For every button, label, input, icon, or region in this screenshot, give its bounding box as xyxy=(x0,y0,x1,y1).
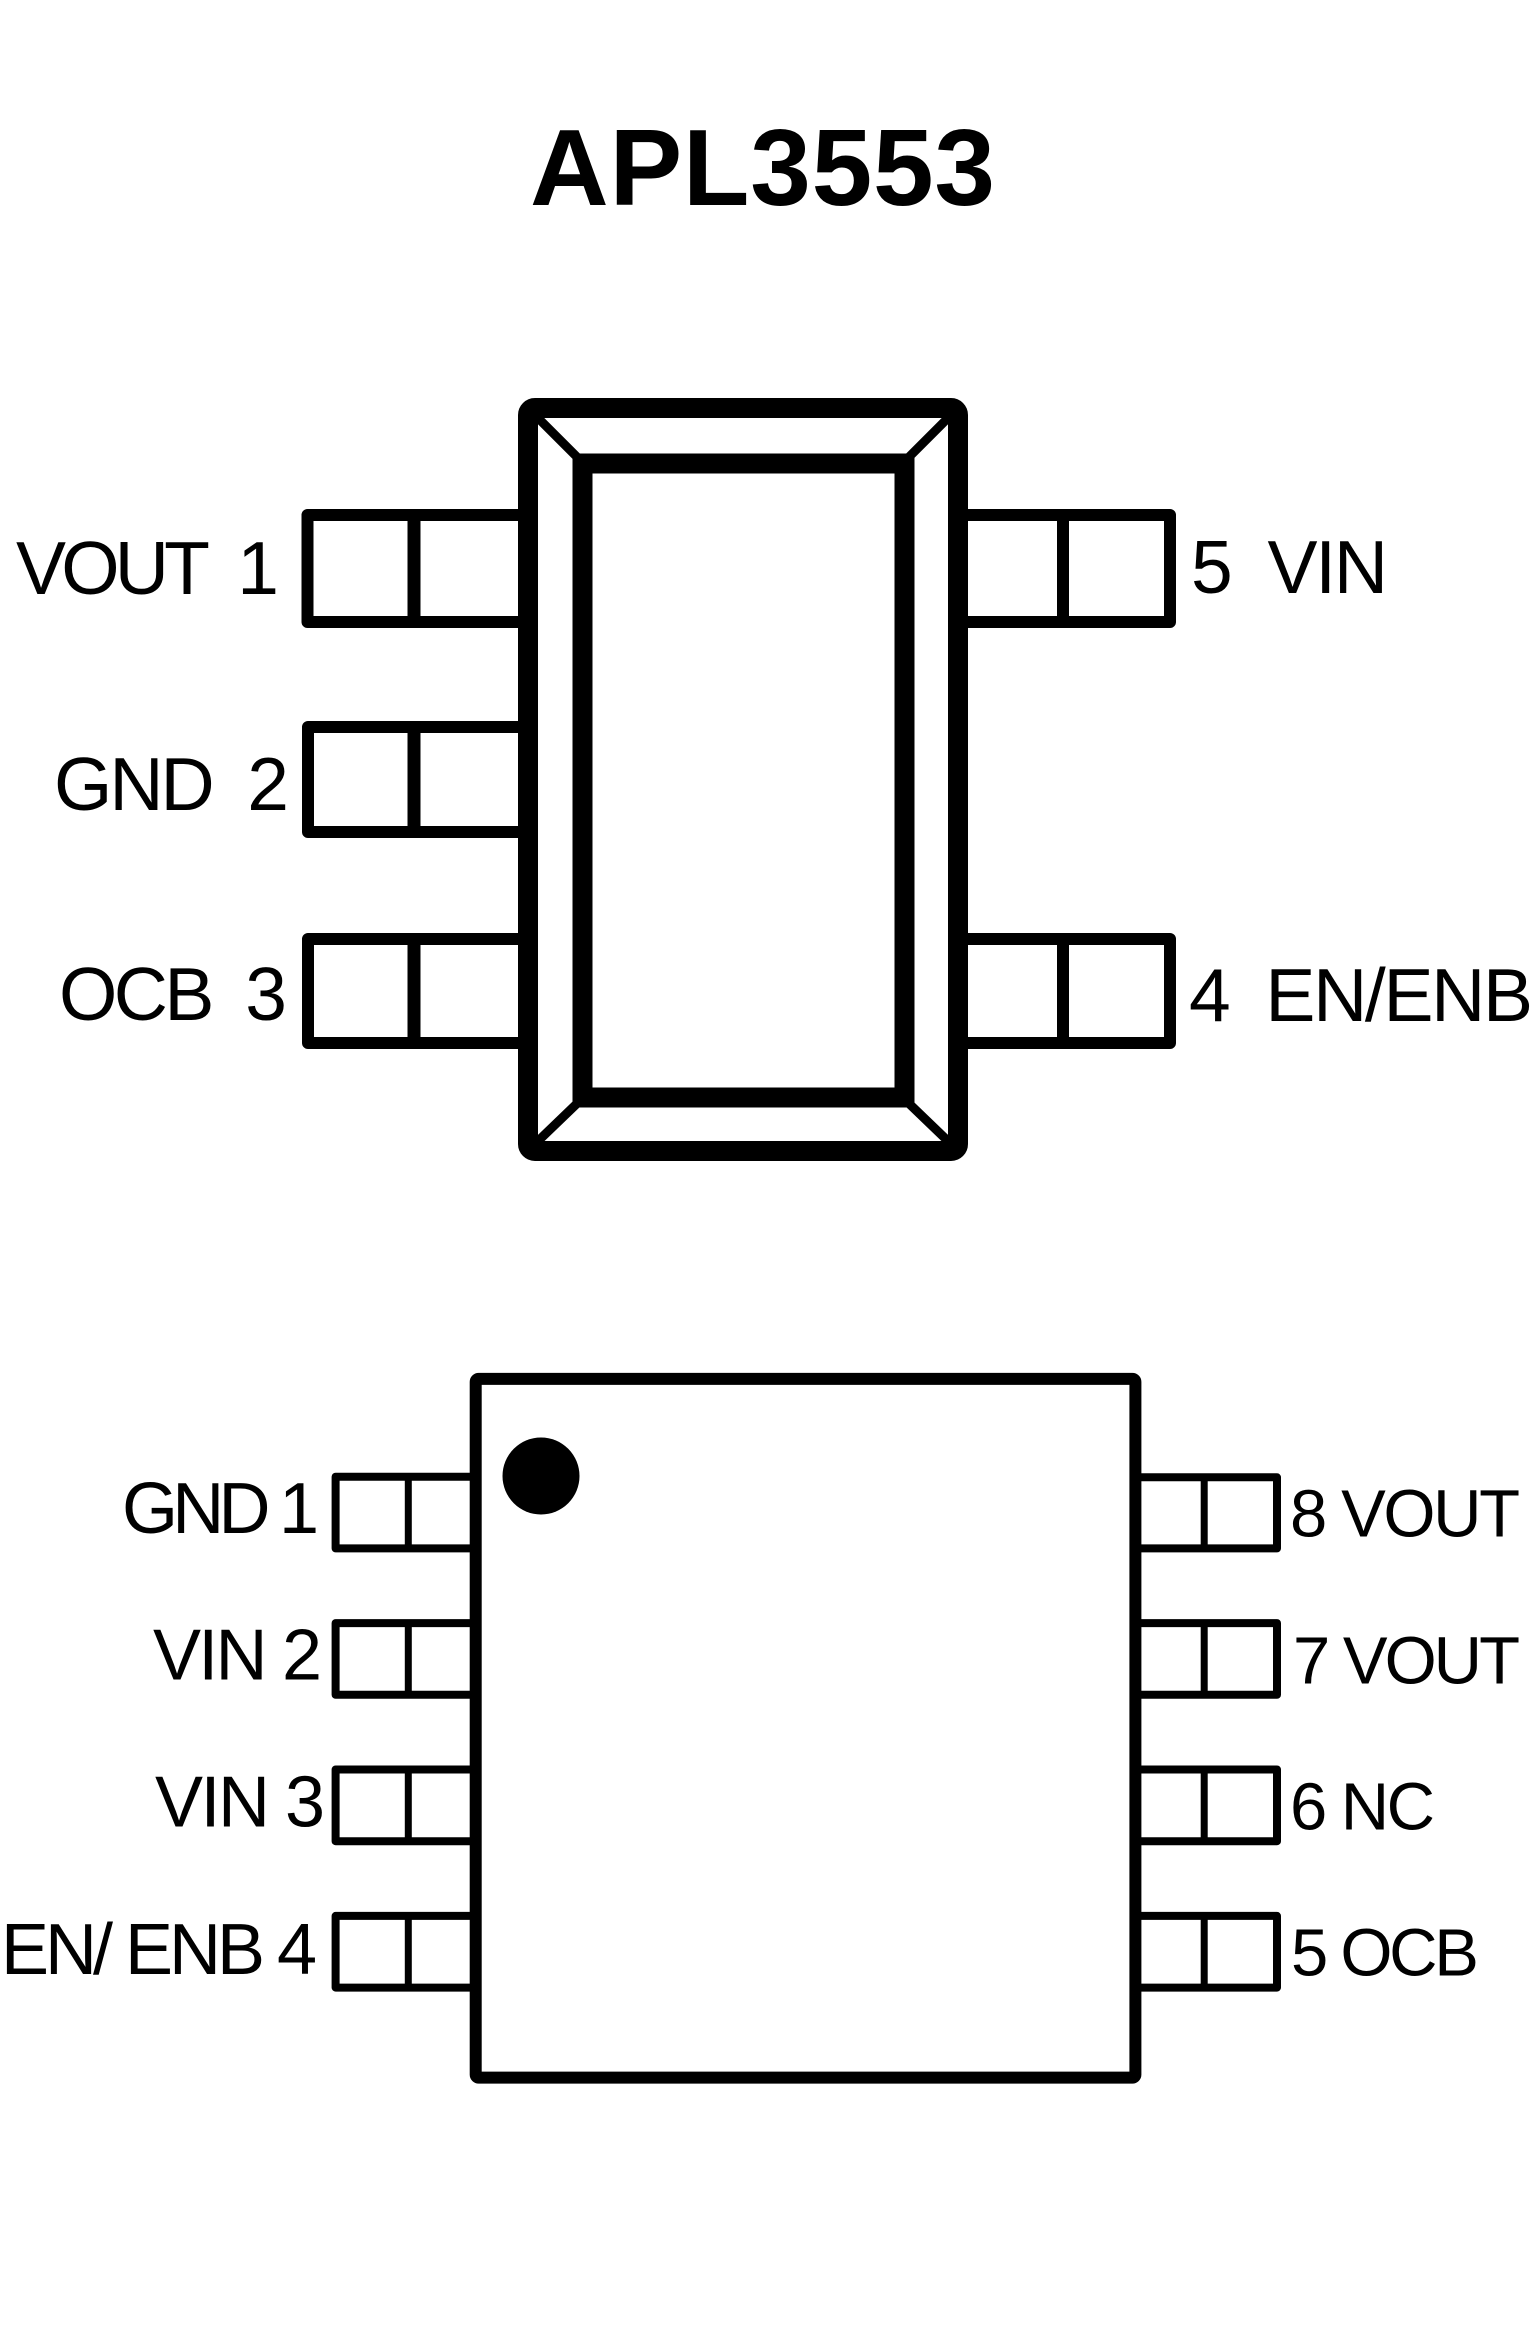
svg-text:APL3553: APL3553 xyxy=(530,107,995,229)
svg-text:7 VOUT: 7 VOUT xyxy=(1293,1624,1520,1699)
svg-text:VIN 3: VIN 3 xyxy=(155,1763,325,1843)
svg-text:5 OCB: 5 OCB xyxy=(1291,1916,1479,1991)
svg-text:6 NC: 6 NC xyxy=(1290,1770,1435,1845)
svg-text:VIN 2: VIN 2 xyxy=(153,1616,322,1696)
svg-text:VOUT 1: VOUT 1 xyxy=(16,526,279,610)
svg-text:GND 2: GND 2 xyxy=(54,742,289,826)
svg-text:OCB 3: OCB 3 xyxy=(59,952,287,1036)
svg-text:GND 1: GND 1 xyxy=(122,1469,319,1549)
svg-text:EN/ ENB 4: EN/ ENB 4 xyxy=(1,1910,317,1990)
svg-text:5 VIN: 5 VIN xyxy=(1191,525,1388,609)
svg-text:4 EN/ENB: 4 EN/ENB xyxy=(1189,953,1533,1037)
svg-text:8 VOUT: 8 VOUT xyxy=(1290,1477,1520,1552)
